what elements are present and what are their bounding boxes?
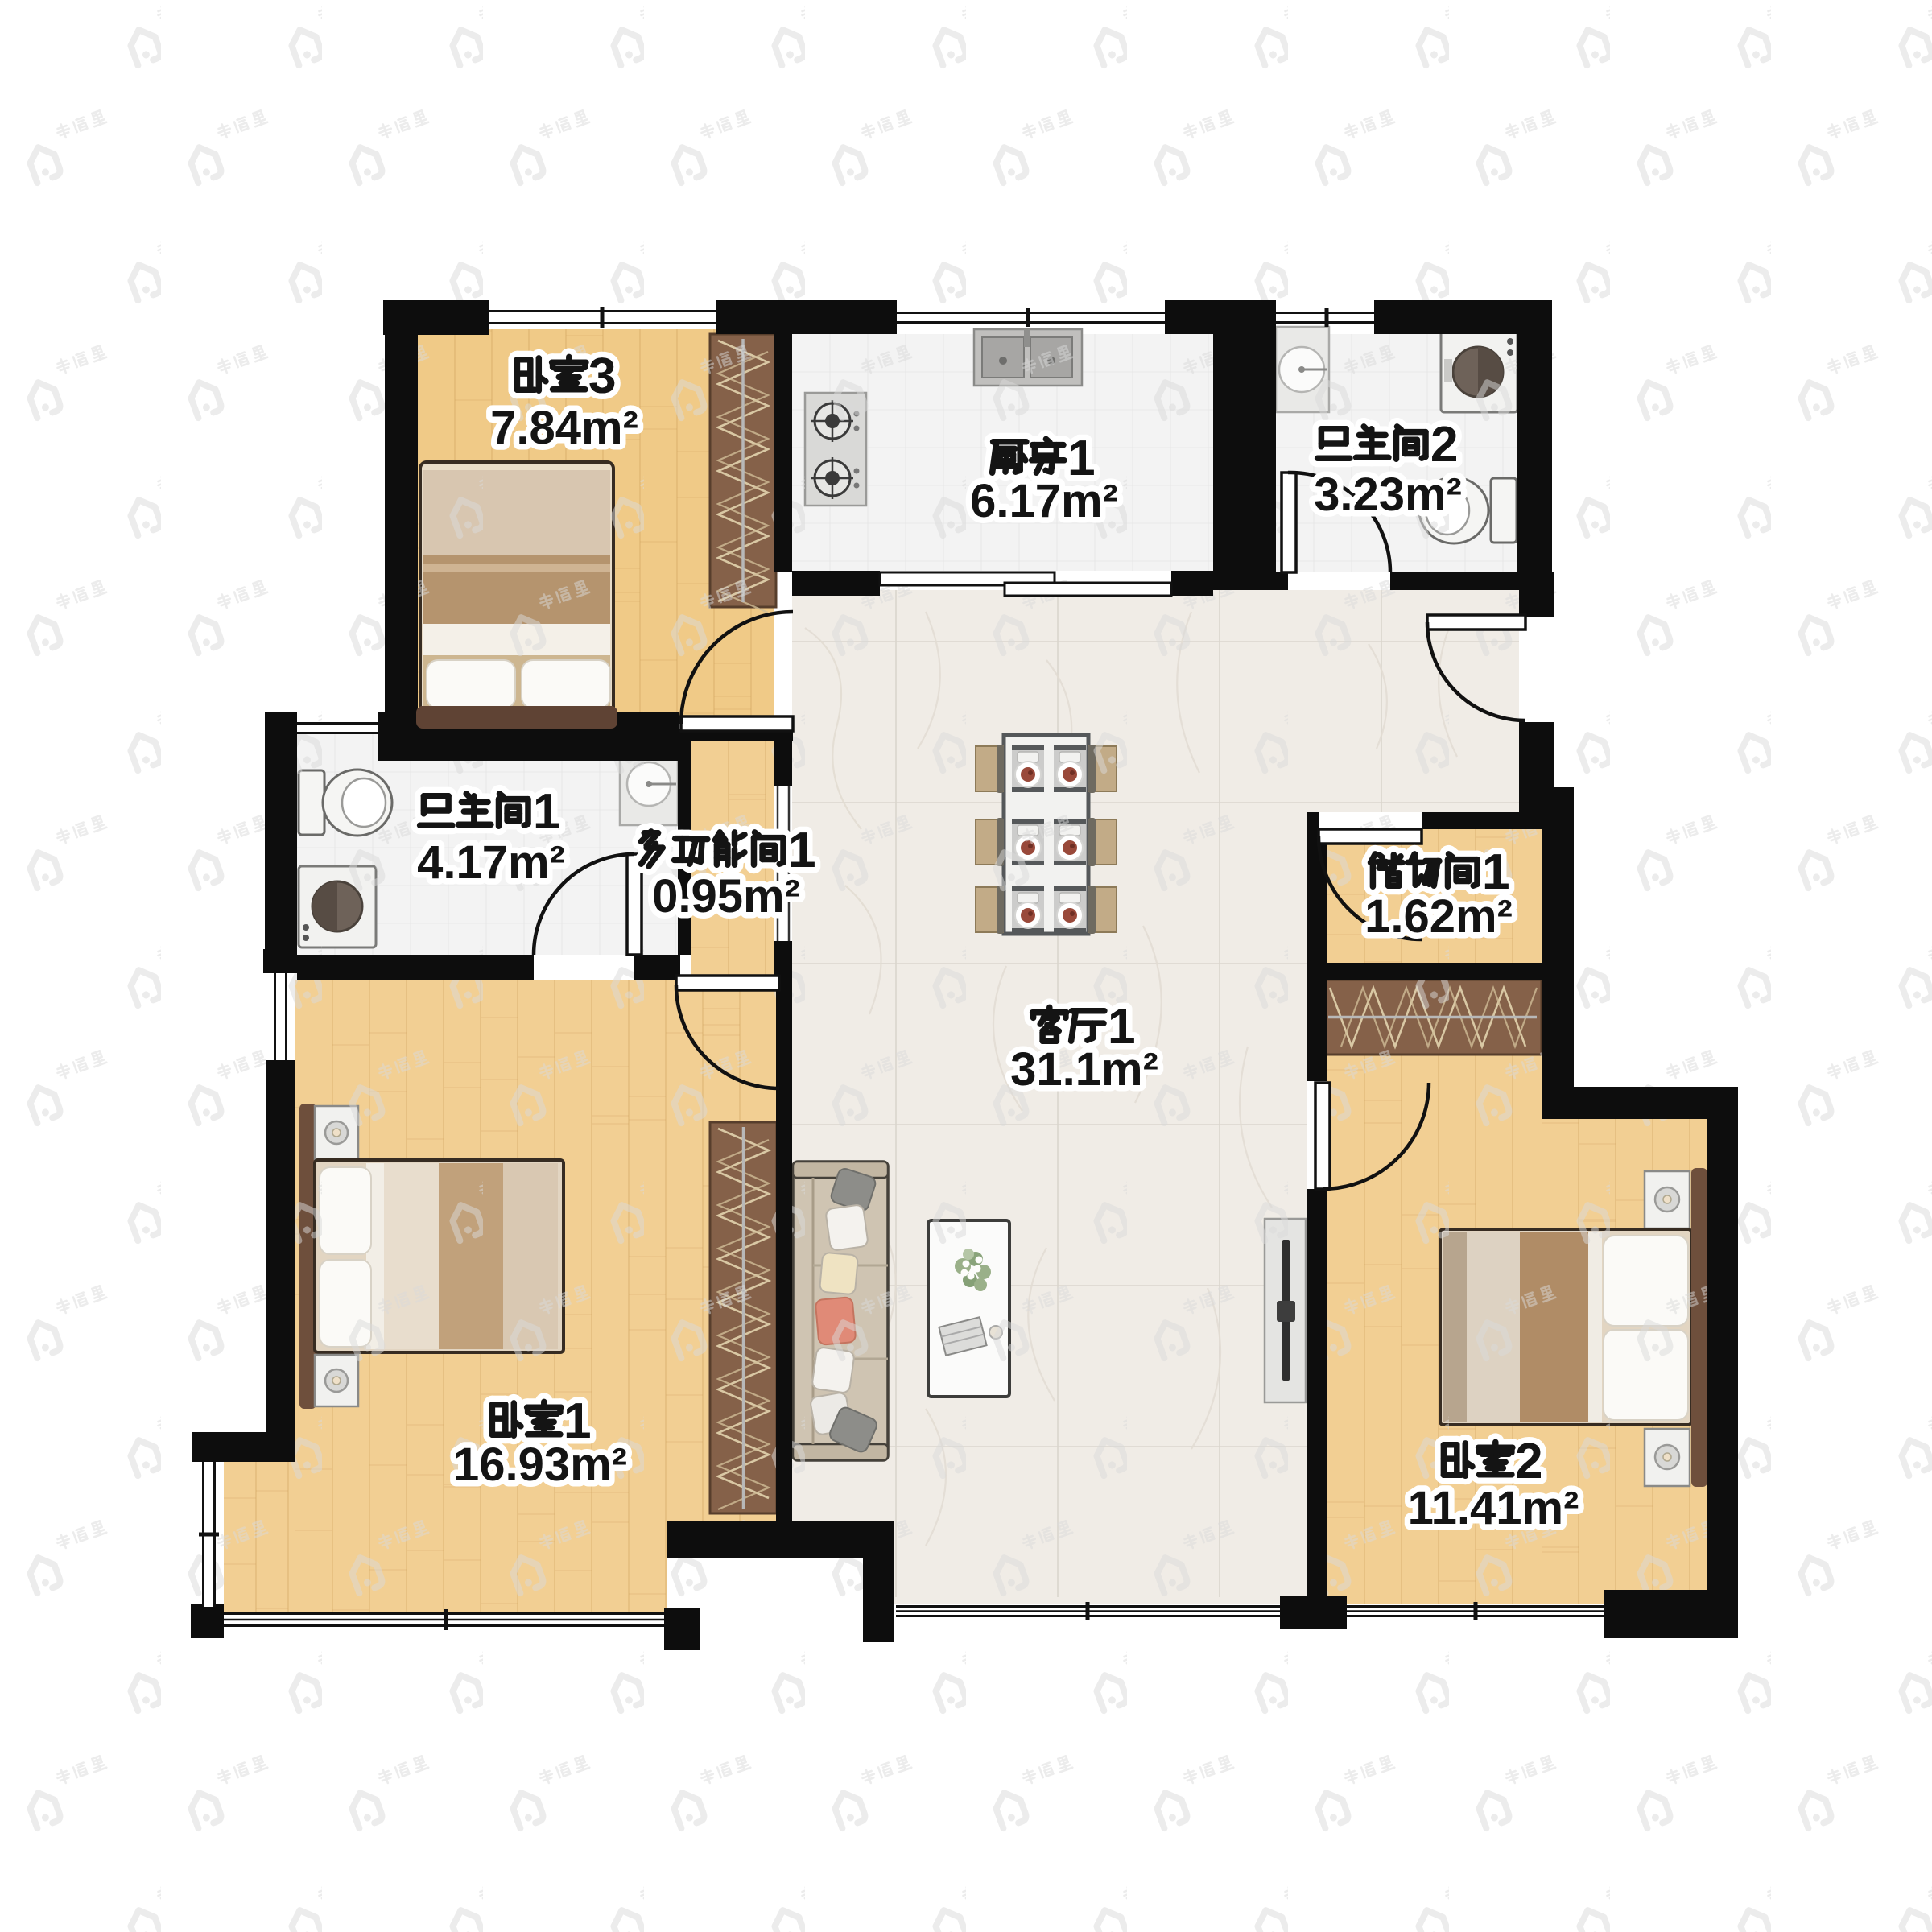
svg-text:2: 2 [1515,1434,1542,1489]
svg-text:0.95m²: 0.95m² [652,870,800,923]
svg-text:1: 1 [533,784,560,840]
svg-text:7.84m²: 7.84m² [490,402,638,454]
svg-text:31.1m²: 31.1m² [1010,1043,1158,1096]
svg-text:3: 3 [588,349,616,404]
svg-text:16.93m²: 16.93m² [453,1439,627,1491]
svg-text:6.17m²: 6.17m² [970,475,1118,527]
svg-text:1.62m²: 1.62m² [1364,890,1513,943]
svg-text:2: 2 [1430,417,1458,473]
svg-text:11.41m²: 11.41m² [1408,1482,1579,1534]
svg-text:4.17m²: 4.17m² [417,836,565,889]
svg-text:3.23m²: 3.23m² [1314,469,1462,521]
